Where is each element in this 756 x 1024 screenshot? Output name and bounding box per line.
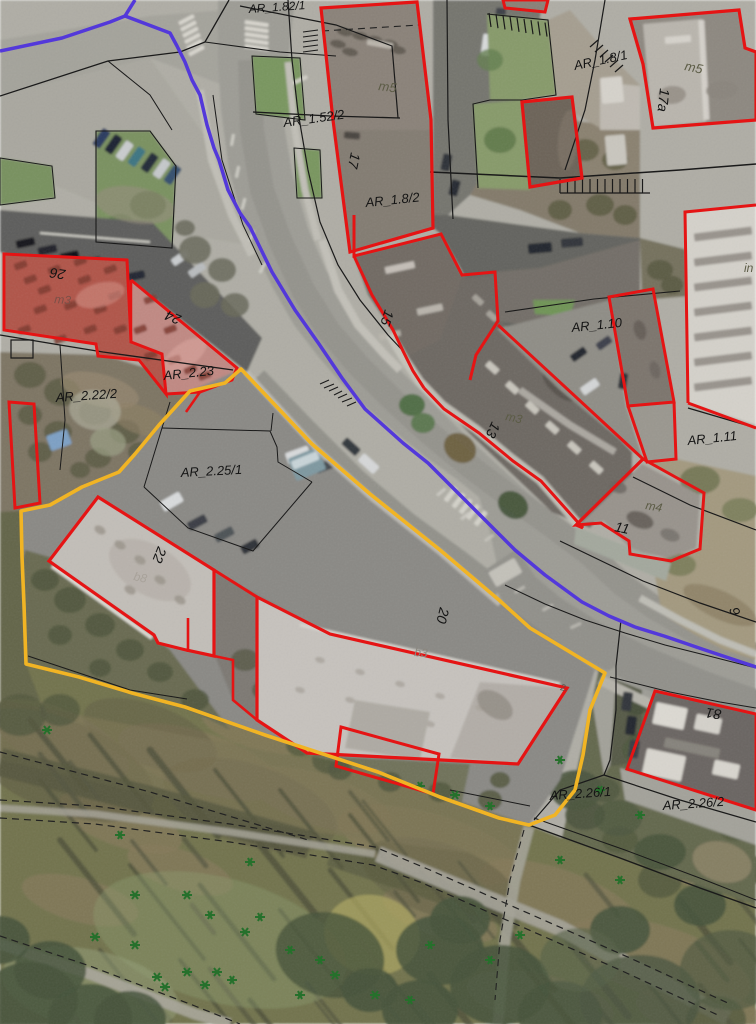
svg-text:b3: b3: [414, 645, 429, 660]
svg-text:26: 26: [49, 265, 68, 283]
svg-text:m5: m5: [378, 78, 399, 95]
svg-text:in: in: [744, 261, 754, 275]
svg-text:17a: 17a: [655, 88, 673, 113]
svg-text:m3: m3: [54, 292, 72, 307]
svg-text:2.: 2.: [559, 682, 569, 693]
svg-text:81: 81: [705, 705, 723, 723]
svg-text:m4: m4: [644, 498, 663, 515]
